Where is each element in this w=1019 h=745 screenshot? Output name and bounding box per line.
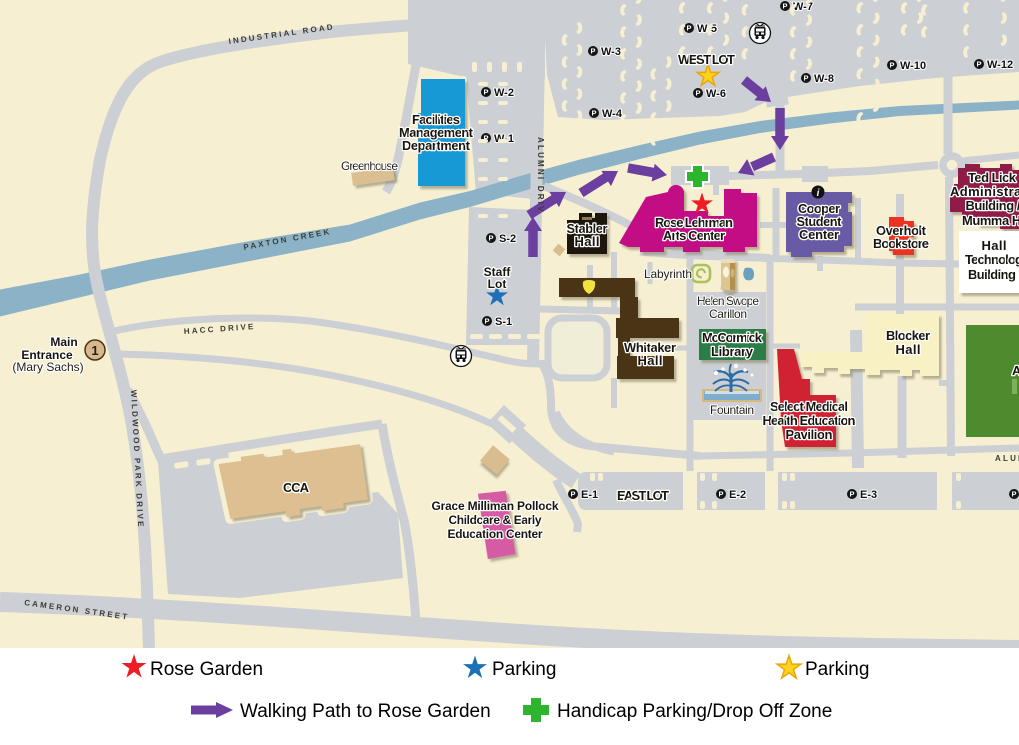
svg-text:S-1: S-1 xyxy=(495,316,512,328)
svg-text:P: P xyxy=(483,88,488,97)
svg-text:ALUMNI DRIV: ALUMNI DRIV xyxy=(536,137,545,214)
svg-text:Rose Garden: Rose Garden xyxy=(150,659,263,680)
svg-text:E-3: E-3 xyxy=(860,489,877,501)
svg-text:i: i xyxy=(817,188,820,199)
svg-text:1: 1 xyxy=(91,343,98,358)
svg-text:W-2: W-2 xyxy=(494,87,514,99)
svg-text:S-2: S-2 xyxy=(499,233,516,245)
svg-text:(Mary Sachs): (Mary Sachs) xyxy=(12,360,83,374)
svg-text:Building: Building xyxy=(968,267,1016,282)
svg-text:W-4: W-4 xyxy=(602,108,623,120)
svg-text:McCormick: McCormick xyxy=(702,330,763,345)
svg-text:Technolog: Technolog xyxy=(965,252,1019,267)
svg-text:Department: Department xyxy=(402,138,471,153)
svg-text:P: P xyxy=(591,109,596,118)
svg-text:P: P xyxy=(718,490,723,499)
svg-text:Hall: Hall xyxy=(896,342,921,357)
svg-text:Lot: Lot xyxy=(488,277,507,291)
svg-text:Ted Lick: Ted Lick xyxy=(968,170,1017,185)
svg-text:Hall: Hall xyxy=(638,353,663,368)
svg-text:P: P xyxy=(782,2,787,11)
svg-text:P: P xyxy=(570,490,575,499)
svg-text:Center: Center xyxy=(799,227,839,242)
svg-text:EAST LOT: EAST LOT xyxy=(617,488,669,503)
svg-text:P: P xyxy=(803,74,808,83)
svg-text:Walking Path to Rose Garden: Walking Path to Rose Garden xyxy=(240,701,491,722)
svg-text:Parking: Parking xyxy=(805,659,869,680)
svg-text:P: P xyxy=(889,61,894,70)
svg-text:W-3: W-3 xyxy=(601,46,621,58)
svg-text:Mumma Ha: Mumma Ha xyxy=(962,213,1019,228)
svg-text:Hall: Hall xyxy=(982,238,1007,253)
svg-text:Handicap Parking/Drop Off Zone: Handicap Parking/Drop Off Zone xyxy=(557,701,832,722)
svg-text:P: P xyxy=(686,24,691,33)
svg-text:Administrati: Administrati xyxy=(950,184,1019,199)
svg-text:Select Medical: Select Medical xyxy=(770,399,848,414)
svg-text:Grace Milliman Pollock: Grace Milliman Pollock xyxy=(432,499,559,513)
svg-text:Building /: Building / xyxy=(966,198,1019,213)
svg-text:CCA: CCA xyxy=(283,480,310,495)
svg-text:WEST LOT: WEST LOT xyxy=(678,52,735,67)
svg-text:Pavilion: Pavilion xyxy=(786,427,833,442)
svg-text:Helen Swope: Helen Swope xyxy=(697,294,759,308)
svg-text:Fountain: Fountain xyxy=(710,403,754,417)
svg-text:Library: Library xyxy=(711,344,754,359)
svg-text:ALUMNI DR: ALUMNI DR xyxy=(995,454,1019,463)
svg-text:Labyrinth: Labyrinth xyxy=(644,267,692,281)
svg-text:Childcare & Early: Childcare & Early xyxy=(449,513,542,527)
svg-text:W-6: W-6 xyxy=(706,88,726,100)
svg-text:Main: Main xyxy=(50,335,77,349)
svg-text:P: P xyxy=(695,89,700,98)
svg-text:P: P xyxy=(849,490,854,499)
svg-text:Arts Center: Arts Center xyxy=(663,228,725,243)
svg-text:Bookstore: Bookstore xyxy=(873,236,929,251)
svg-text:Hall: Hall xyxy=(575,234,600,249)
svg-text:W-10: W-10 xyxy=(900,60,926,72)
svg-text:P: P xyxy=(590,47,595,56)
svg-text:P: P xyxy=(488,234,493,243)
svg-text:P: P xyxy=(976,60,981,69)
svg-text:Health Education: Health Education xyxy=(763,413,856,428)
svg-text:W-5: W-5 xyxy=(697,23,717,35)
svg-text:P: P xyxy=(484,317,489,326)
svg-text:Education Center: Education Center xyxy=(448,527,543,541)
svg-text:E-2: E-2 xyxy=(729,489,746,501)
svg-text:Parking: Parking xyxy=(492,659,556,680)
svg-text:Carillon: Carillon xyxy=(709,307,747,321)
svg-text:E-1: E-1 xyxy=(581,489,598,501)
svg-text:Blocker: Blocker xyxy=(886,328,930,343)
svg-text:P: P xyxy=(1011,490,1016,499)
svg-text:W-12: W-12 xyxy=(987,59,1013,71)
svg-text:W-8: W-8 xyxy=(814,73,834,85)
svg-text:Greenhouse: Greenhouse xyxy=(341,159,398,173)
svg-text:A: A xyxy=(1012,363,1019,378)
